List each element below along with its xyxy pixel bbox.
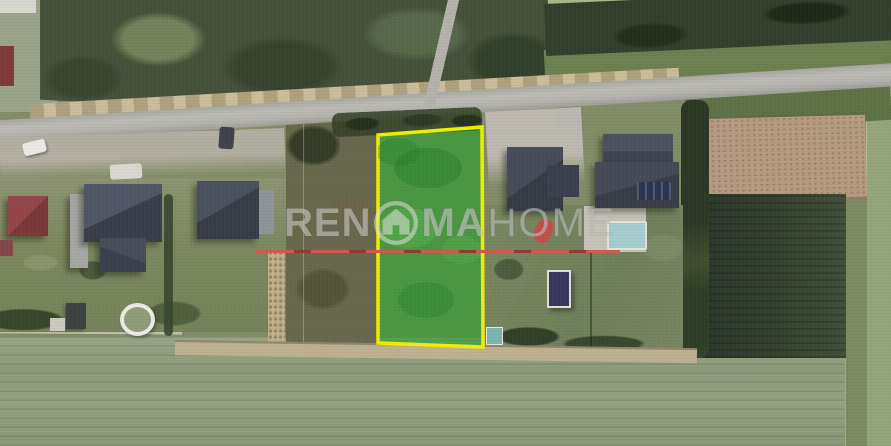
brand-watermark: REN MA HOME	[284, 198, 616, 248]
watermark-text-ma: MA	[421, 198, 485, 248]
house-in-circle-icon	[373, 200, 419, 246]
aerial-map-view: REN MA HOME	[0, 0, 891, 446]
red-boundary-line	[256, 250, 620, 253]
watermark-text-ren: REN	[284, 198, 371, 248]
watermark-text-home: HOME	[488, 198, 616, 248]
